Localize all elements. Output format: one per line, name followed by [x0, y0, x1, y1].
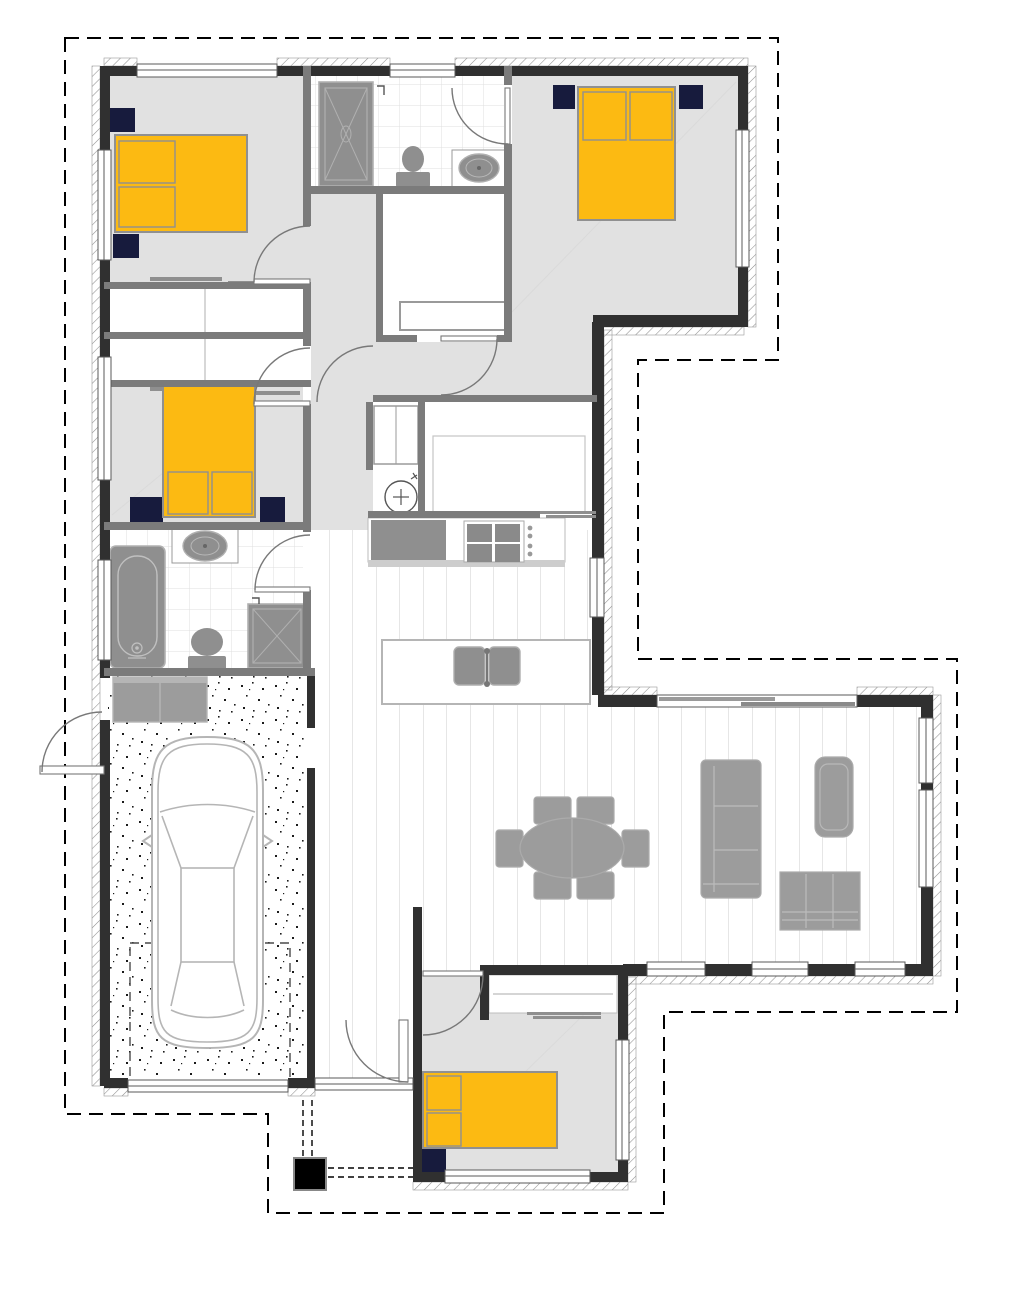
door-leaf	[505, 88, 510, 144]
side-door-leaf	[40, 766, 104, 774]
pillow	[212, 472, 252, 514]
living-sliding-door	[657, 695, 857, 707]
shower	[248, 598, 306, 668]
toilet	[188, 628, 226, 670]
nightstand	[679, 85, 703, 109]
walkway-floor	[315, 695, 413, 1078]
sideboard	[780, 872, 860, 930]
cooktop	[464, 521, 532, 562]
sliding-door	[150, 277, 222, 281]
nightstand	[418, 1148, 446, 1174]
walk-in-robe-shelf	[400, 302, 506, 330]
pantry-sliding-door	[546, 515, 596, 518]
dining-chair	[622, 830, 649, 867]
door-leaf	[441, 336, 497, 341]
porch-post	[294, 1158, 326, 1190]
pillow	[583, 92, 626, 140]
counter-cabinet	[371, 520, 446, 560]
door-leaf	[254, 279, 310, 284]
hall-floor	[311, 194, 383, 402]
laundry-bench	[113, 677, 207, 722]
kitchen-island	[382, 640, 590, 704]
pantry-floor	[425, 402, 588, 515]
nightstand	[130, 497, 163, 522]
pillow	[630, 92, 672, 140]
pantry-sliding-door	[540, 511, 596, 514]
sink-basin	[489, 647, 520, 685]
pillow	[168, 472, 208, 514]
vanity	[452, 150, 506, 187]
door-leaf	[254, 401, 310, 406]
nightstand	[553, 85, 575, 109]
car	[143, 737, 272, 1048]
vanity	[172, 528, 238, 563]
nightstand	[109, 108, 135, 132]
pillow	[119, 187, 175, 227]
nightstand	[260, 497, 285, 522]
nightstand	[113, 234, 139, 258]
floor-plan-page	[0, 0, 1032, 1290]
sliding-door	[533, 1016, 601, 1019]
dining-chair	[496, 830, 523, 867]
corridor-floor	[373, 342, 512, 395]
pillow	[427, 1113, 461, 1146]
sofa	[701, 760, 761, 898]
door-leaf	[255, 587, 310, 592]
pillow	[119, 141, 175, 183]
bathtub	[110, 546, 165, 668]
front-door-leaf	[399, 1020, 408, 1082]
pillow	[427, 1076, 461, 1110]
sliding-door	[527, 1012, 601, 1015]
sink-basin	[454, 647, 485, 685]
door-leaf	[423, 971, 483, 976]
faucet	[484, 648, 490, 654]
floor-plan-drawing	[0, 0, 1032, 1290]
